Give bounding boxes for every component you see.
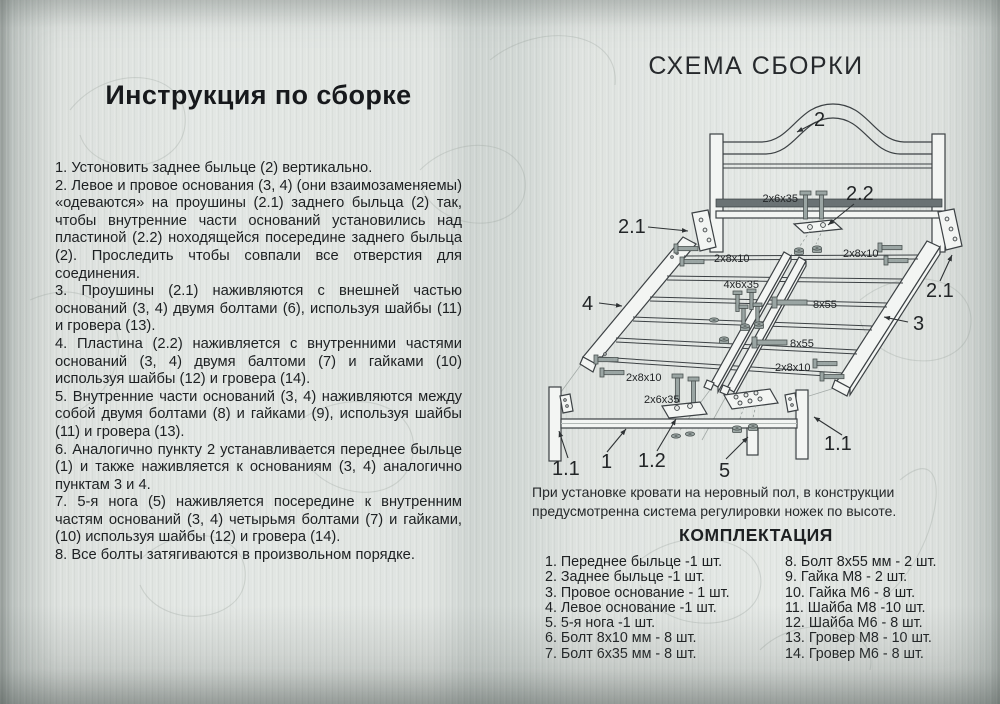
bolt-label-2x6x35-top: 2x6x35	[763, 193, 798, 205]
bolt-label-2x8x10-top-right: 2x8x10	[843, 248, 878, 260]
step-8: 8. Все болты затягиваются в произвольном…	[55, 547, 462, 565]
headboard-arch-outer	[723, 104, 932, 142]
step-1: 1. Устоновить заднее быльце (2) вертикал…	[55, 160, 462, 178]
assembly-diagram: 2 2.1 2.1 2.2 4 3 1.1 1.1 1 1.2 5 2x6x35…	[530, 90, 990, 500]
diagram-title: СХЕМА СБОРКИ	[530, 52, 982, 81]
leveling-note: При установке кровати на неровный пол, в…	[532, 483, 980, 520]
bolt-label-2x8x10-top-left: 2x8x10	[714, 253, 749, 265]
bolt-label-2x8x10-bottom-right: 2x8x10	[775, 362, 810, 374]
center-plate-2-2	[794, 220, 842, 233]
fifth-leg	[747, 428, 758, 455]
part-item-12: 12. Шайба М6 - 8 шт.	[785, 616, 980, 631]
part-item-9: 9. Гайка М8 - 2 шт.	[785, 570, 980, 585]
step-2: 2. Левое и провое основания (3, 4) (они …	[55, 178, 462, 284]
label-left-base: 4	[582, 293, 593, 315]
part-item-5: 5. 5-я нога -1 шт.	[545, 616, 785, 631]
part-item-4: 4. Левое основание -1 шт.	[545, 601, 785, 616]
headboard-group	[692, 104, 962, 255]
part-item-10: 10. Гайка М6 - 8 шт.	[785, 586, 980, 601]
label-bracket-right: 2.1	[926, 280, 954, 302]
part-item-3: 3. Провое основание - 1 шт.	[545, 586, 785, 601]
parts-list: 1. Переднее быльце -1 шт. 2. Заднее быль…	[545, 555, 980, 662]
headboard-lower-rail	[716, 199, 942, 207]
assembly-steps: 1. Устоновить заднее быльце (2) вертикал…	[55, 160, 462, 565]
parts-list-column-2: 8. Болт 8х55 мм - 2 шт. 9. Гайка М8 - 2 …	[785, 555, 980, 662]
part-item-14: 14. Гровер М6 - 8 шт.	[785, 647, 980, 662]
label-fifth-leg: 5	[719, 460, 730, 482]
step-3: 3. Проушины (2.1) наживляются с внешней …	[55, 283, 462, 336]
label-front-rail: 1	[601, 451, 612, 473]
label-front-plate: 1.2	[638, 450, 666, 472]
headboard-arch-inner	[723, 118, 932, 154]
step-7: 7. 5-я нога (5) наживляется посередине к…	[55, 494, 462, 547]
label-front-leg-left: 1.1	[552, 458, 580, 480]
bolt-label-8x55-upper: 8x55	[813, 299, 837, 311]
part-item-8: 8. Болт 8х55 мм - 2 шт.	[785, 555, 980, 570]
bolt-label-4x6x35: 4x6x35	[724, 279, 759, 291]
parts-list-title: КОМПЛЕКТАЦИЯ	[530, 525, 982, 546]
front-left-leg	[549, 387, 561, 461]
part-item-7: 7. Болт 6х35 мм - 8 шт.	[545, 647, 785, 662]
label-bracket-left: 2.1	[618, 216, 646, 238]
label-headboard: 2	[814, 109, 825, 131]
parts-list-column-1: 1. Переднее быльце -1 шт. 2. Заднее быль…	[545, 555, 785, 662]
label-center-plate: 2.2	[846, 183, 874, 205]
front-right-leg	[796, 390, 808, 459]
step-6: 6. Аналогично пункту 2 устанавливается п…	[55, 442, 462, 495]
step-5: 5. Внутренние части оснований (3, 4) наж…	[55, 389, 462, 442]
instruction-sheet-page: Инструкция по сборке 1. Устоновить задне…	[0, 0, 1000, 704]
bolt-label-2x6x35-bottom: 2x6x35	[644, 394, 679, 406]
part-item-6: 6. Болт 8х10 мм - 8 шт.	[545, 631, 785, 646]
page-title: Инструкция по сборке	[55, 80, 462, 111]
part-item-11: 11. Шайба М8 -10 шт.	[785, 601, 980, 616]
label-right-base: 3	[913, 313, 924, 335]
bolt-label-8x55-lower: 8x55	[790, 338, 814, 350]
part-item-2: 2. Заднее быльце -1 шт.	[545, 570, 785, 585]
part-item-13: 13. Гровер М8 - 10 шт.	[785, 631, 980, 646]
step-4: 4. Пластина (2.2) наживляется с внутренн…	[55, 336, 462, 389]
part-item-1: 1. Переднее быльце -1 шт.	[545, 555, 785, 570]
bolt-label-2x8x10-bottom-left: 2x8x10	[626, 372, 661, 384]
label-front-leg-right: 1.1	[824, 433, 852, 455]
